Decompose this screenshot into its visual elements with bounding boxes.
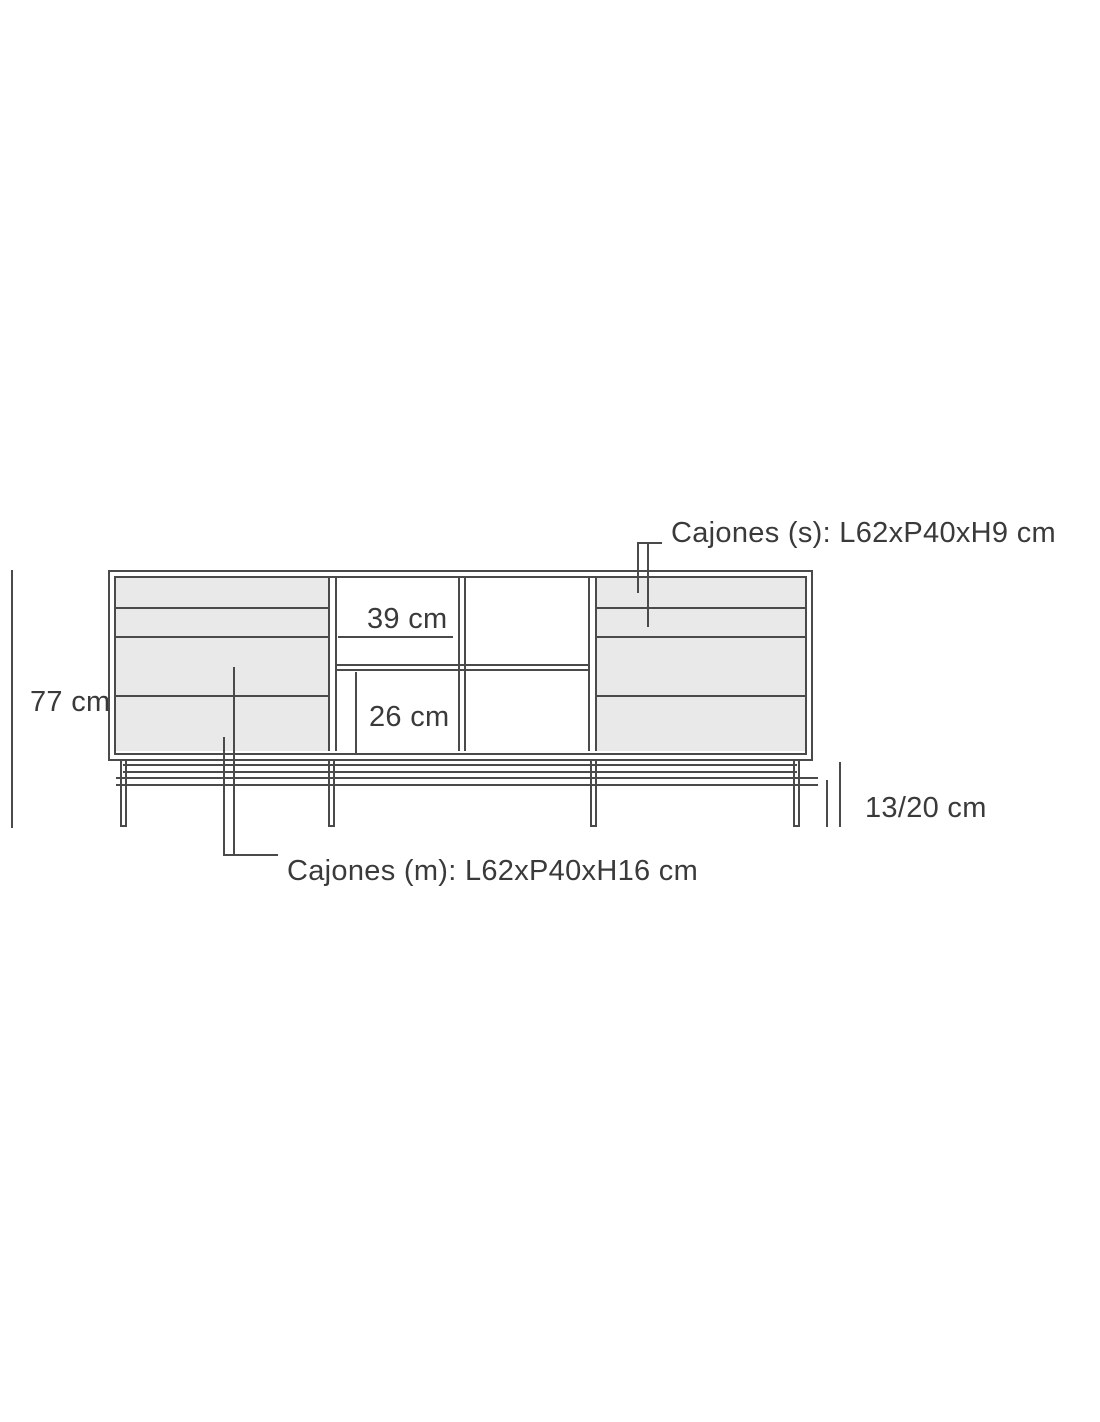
leg [590, 761, 597, 827]
base-front-rail [123, 764, 797, 773]
leader-line-medium-drawers [233, 667, 235, 856]
vertical-panel-line [328, 578, 330, 751]
leg [328, 761, 335, 827]
shelf-height-label: 26 cm [369, 703, 449, 732]
drawer-divider [597, 695, 805, 697]
medium-drawers-label: Cajones (m): L62xP40xH16 cm [287, 857, 698, 886]
dimension-line-shelf-height [355, 672, 357, 753]
drawer-divider [597, 636, 805, 638]
drawer-divider [597, 607, 805, 609]
drawer-stack-left [116, 578, 328, 751]
dimension-line-total-height [11, 570, 13, 828]
leader-line-small-drawers [637, 542, 662, 544]
base-back-rail [116, 777, 818, 786]
shelf-line [337, 669, 588, 671]
small-drawers-label: Cajones (s): L62xP40xH9 cm [671, 519, 1056, 548]
total-height-label: 77 cm [30, 688, 110, 717]
drawer-divider [116, 695, 328, 697]
leg [120, 761, 127, 827]
drawer-divider [116, 607, 328, 609]
dimension-line-leg-20 [839, 762, 841, 827]
vertical-panel-line [588, 578, 590, 751]
leg [793, 761, 800, 827]
leader-line-small-drawers [637, 542, 639, 593]
shelf-width-label: 39 cm [367, 605, 447, 634]
drawer-stack-right [597, 578, 805, 751]
shelf-line [337, 664, 588, 666]
dimension-line-shelf-width [338, 636, 453, 638]
leader-line-medium-drawers [223, 854, 278, 856]
drawer-divider [116, 636, 328, 638]
dimension-diagram: 77 cm 39 cm 26 cm Cajones (s): L62xP40xH… [0, 0, 1100, 1422]
leg-height-label: 13/20 cm [865, 794, 987, 823]
dimension-line-leg-13 [826, 780, 828, 827]
vertical-panel-line [595, 578, 597, 751]
leader-line-medium-drawers [223, 737, 225, 856]
leader-line-small-drawers [647, 542, 649, 627]
